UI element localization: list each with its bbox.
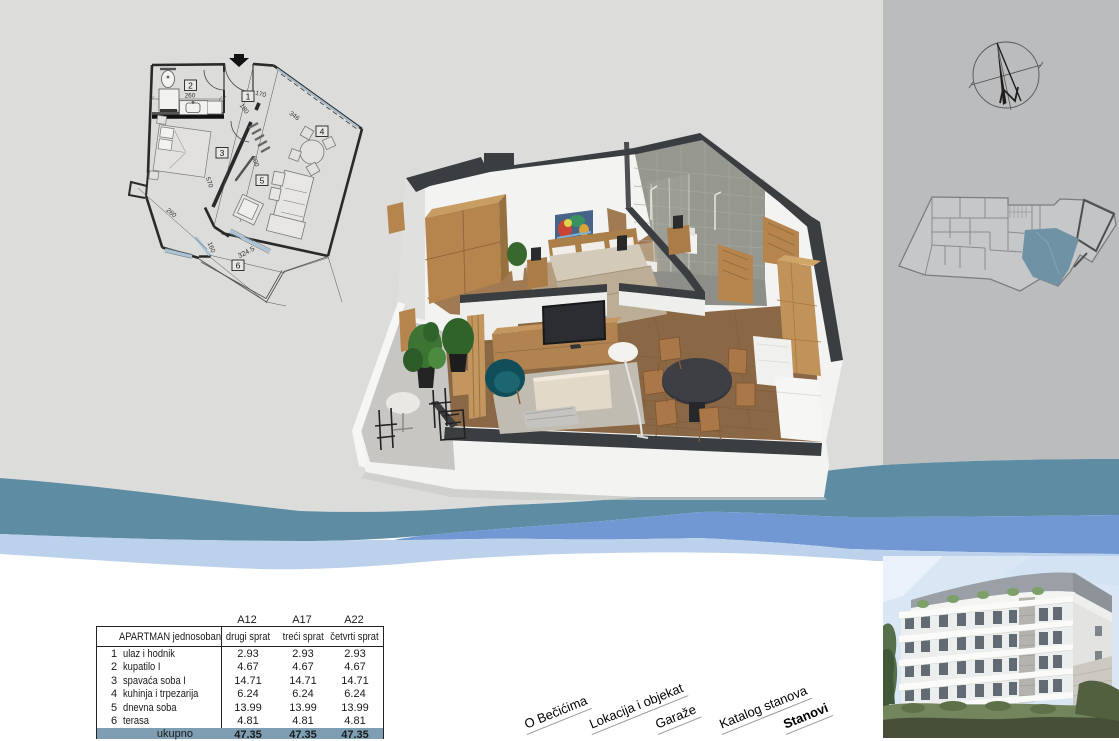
svg-text:3: 3 — [220, 148, 225, 158]
svg-text:6: 6 — [236, 261, 241, 271]
svg-text:260: 260 — [185, 93, 196, 100]
svg-text:324.5: 324.5 — [237, 246, 256, 260]
svg-text:4: 4 — [320, 127, 325, 137]
svg-text:570: 570 — [204, 176, 214, 189]
svg-text:5: 5 — [260, 176, 265, 186]
svg-text:170: 170 — [255, 90, 268, 100]
svg-text:2: 2 — [188, 81, 193, 91]
svg-text:180: 180 — [238, 102, 250, 115]
svg-text:260: 260 — [165, 207, 178, 220]
svg-text:1: 1 — [246, 92, 251, 102]
svg-text:600: 600 — [250, 155, 260, 168]
svg-text:346: 346 — [288, 110, 301, 122]
